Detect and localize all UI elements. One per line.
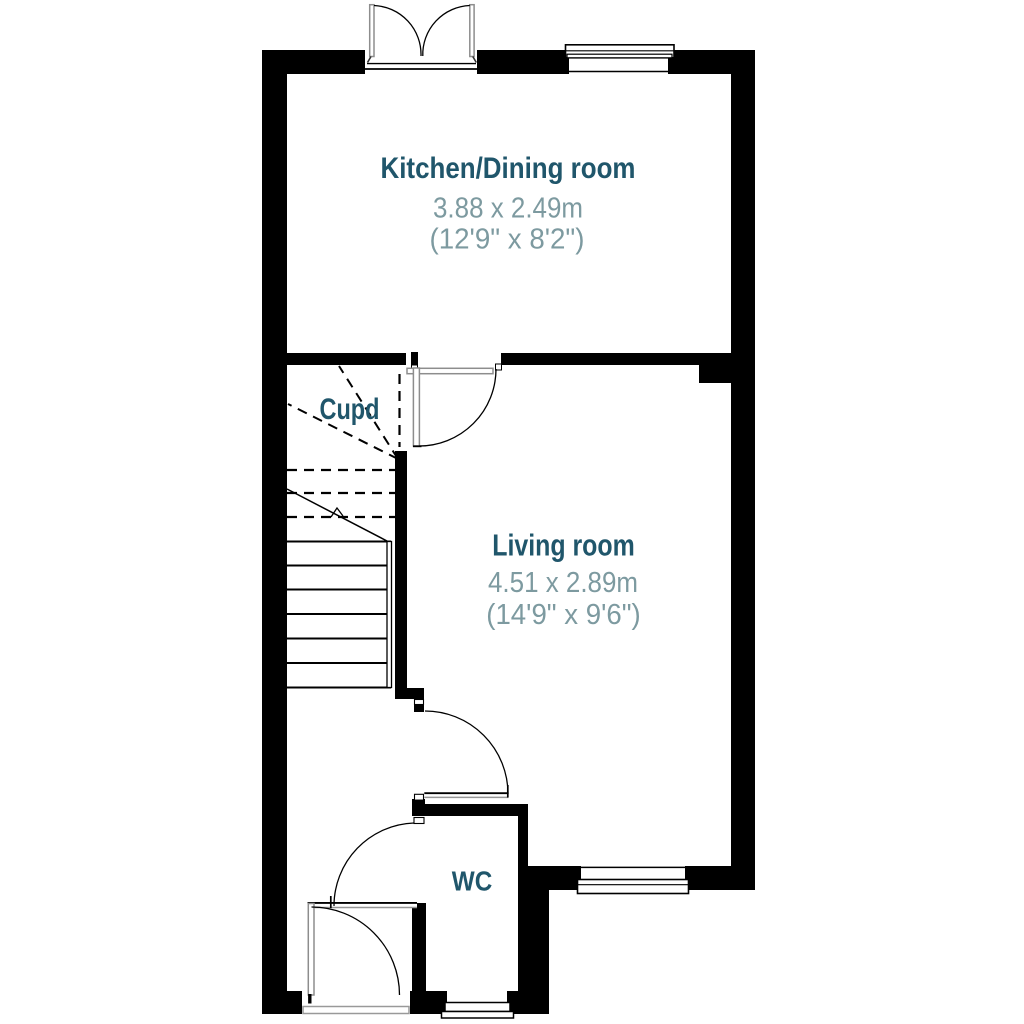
svg-text:Living room: Living room [492,529,635,563]
svg-text:(12'9" x 8'2"): (12'9" x 8'2") [430,224,585,256]
svg-text:Kitchen/Dining room: Kitchen/Dining room [381,152,636,185]
svg-text:3.88 x 2.49m: 3.88 x 2.49m [433,193,583,225]
svg-text:4.51 x 2.89m: 4.51 x 2.89m [488,567,638,599]
svg-text:(14'9" x 9'6"): (14'9" x 9'6") [486,599,641,631]
svg-text:Cupd: Cupd [320,393,380,426]
svg-text:WC: WC [452,866,493,897]
